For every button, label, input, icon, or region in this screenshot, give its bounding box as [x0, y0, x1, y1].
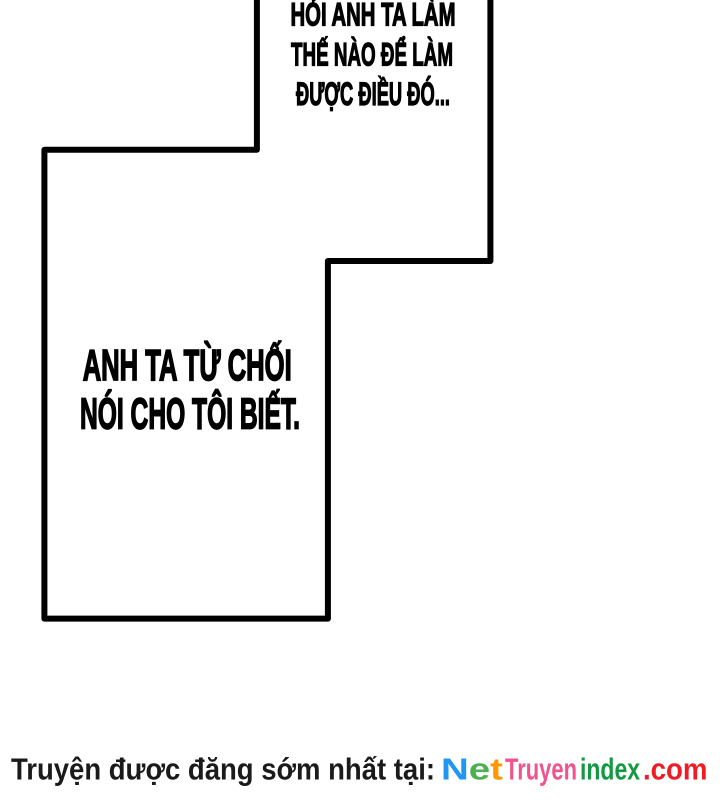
svg-text:ANH TA TỪ CHỐI: ANH TA TỪ CHỐI — [83, 339, 292, 390]
svg-text:.com: .com — [643, 752, 708, 786]
svg-text:NÓI CHO TÔI BIẾT.: NÓI CHO TÔI BIẾT. — [80, 387, 300, 438]
svg-text:index: index — [580, 752, 640, 786]
svg-text:Truyện được đăng sớm nhất tại:: Truyện được đăng sớm nhất tại: — [11, 752, 435, 786]
svg-text:Net: Net — [441, 752, 503, 786]
svg-text:ĐƯỢC ĐIỀU ĐÓ...: ĐƯỢC ĐIỀU ĐÓ... — [296, 76, 450, 112]
svg-text:HỎI ANH TA LÀM: HỎI ANH TA LÀM — [291, 0, 456, 33]
svg-text:Truyen: Truyen — [505, 752, 577, 786]
svg-text:THẾ NÀO ĐỂ LÀM: THẾ NÀO ĐỂ LÀM — [291, 37, 453, 73]
